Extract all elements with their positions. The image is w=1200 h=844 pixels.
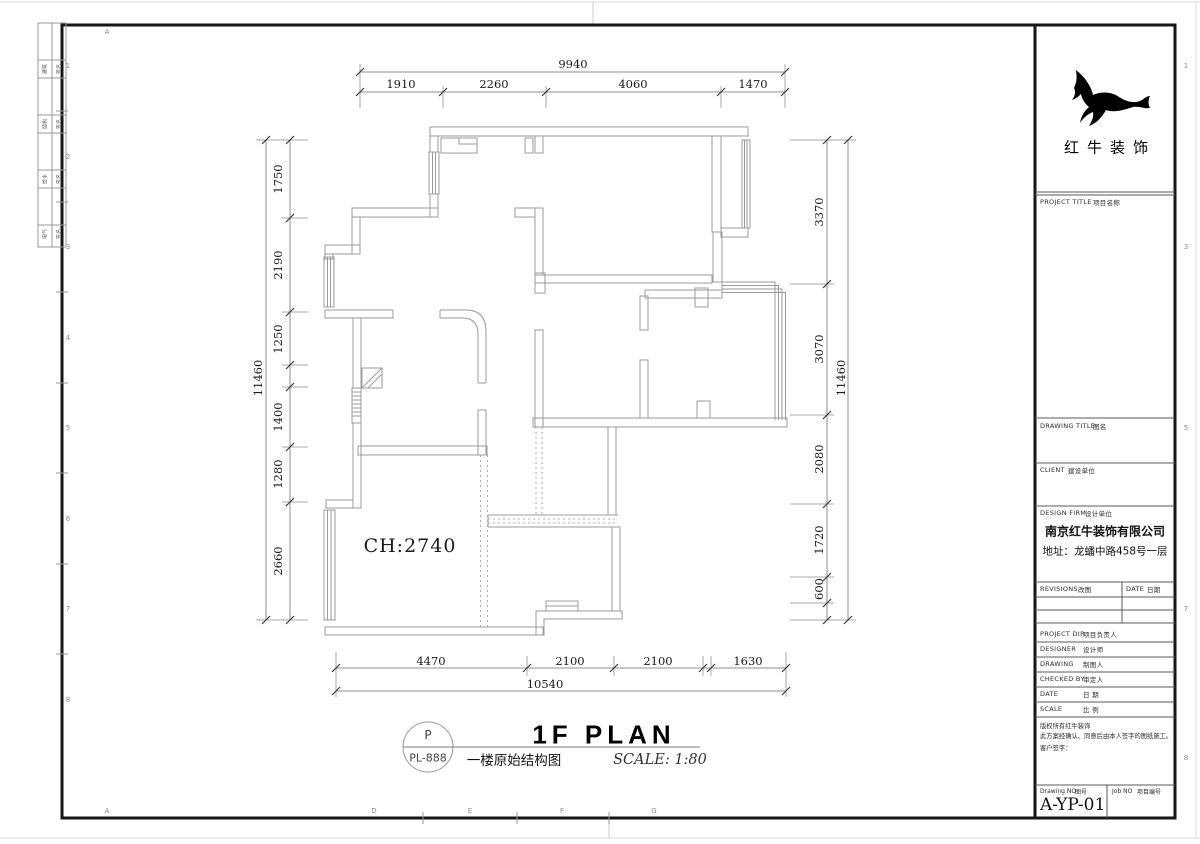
grid-number-left-8: 8 bbox=[66, 696, 70, 704]
signoff-cell: 给水 bbox=[42, 174, 49, 184]
signoff-cell: 签名 bbox=[56, 64, 63, 74]
grid-number-left-1: 1 bbox=[66, 62, 70, 70]
dim-bottom-seg-2: 2100 bbox=[555, 654, 584, 668]
row-scale-cn: 比 例 bbox=[1083, 704, 1099, 714]
design-firm-label-cn: 设计单位 bbox=[1085, 508, 1112, 518]
dim-right-seg-3: 2080 bbox=[812, 444, 826, 473]
date-header-en: DATE bbox=[1126, 585, 1144, 593]
drawing-title-label-en: DRAWING TITLE bbox=[1040, 422, 1095, 430]
copyright-line-2: 此方案经确认、同意后由本人签字的图纸施工。 bbox=[1040, 731, 1172, 740]
grid-number-left-4: 4 bbox=[66, 334, 70, 342]
row-designer-cn: 设计师 bbox=[1083, 644, 1103, 654]
grid-number-left-6: 6 bbox=[66, 515, 70, 523]
drawing-title-label-cn: 图名 bbox=[1093, 421, 1107, 431]
row-drawing-en: DRAWING bbox=[1040, 660, 1074, 668]
signoff-cell: 签名 bbox=[56, 119, 63, 129]
grid-number-right-5: 5 bbox=[1184, 424, 1188, 432]
dim-top-seg-3: 4060 bbox=[618, 77, 647, 91]
row-checked-en: CHECKED BY bbox=[1040, 675, 1085, 683]
dim-left-seg-1: 1750 bbox=[271, 164, 285, 193]
row-date-cn: 日 期 bbox=[1083, 689, 1099, 699]
dim-bottom-seg-3: 2100 bbox=[643, 654, 672, 668]
dim-bottom-seg-1: 4470 bbox=[416, 654, 445, 668]
grid-number-left-3: 3 bbox=[66, 243, 70, 251]
project-title-label-cn: 项目名称 bbox=[1093, 197, 1120, 207]
client-label-en: CLIENT bbox=[1040, 466, 1065, 474]
grid-letter-bottom-d: D bbox=[371, 807, 376, 815]
dim-right-seg-5: 600 bbox=[812, 578, 826, 600]
signoff-cell: 电气 bbox=[42, 229, 49, 239]
date-header-cn: 日期 bbox=[1147, 584, 1161, 594]
plan-scale: SCALE: 1:80 bbox=[613, 752, 707, 768]
row-project-dir-cn: 项目负责人 bbox=[1083, 629, 1117, 639]
ceiling-height-label: CH:2740 bbox=[364, 535, 457, 557]
drawing-number: A-YP-01 bbox=[1040, 795, 1105, 815]
grid-number-left-7: 7 bbox=[66, 605, 70, 613]
row-checked-cn: 审定人 bbox=[1083, 674, 1103, 684]
bubble-letter: P bbox=[424, 728, 431, 742]
row-date-en: DATE bbox=[1040, 690, 1058, 698]
company-address: 地址：龙蟠中路458号一层 bbox=[1042, 544, 1167, 559]
grid-letter-bottom-e: E bbox=[468, 807, 472, 815]
dim-right-total: 11460 bbox=[834, 360, 848, 397]
dim-left-seg-2: 2190 bbox=[271, 250, 285, 279]
dim-top-seg-2: 2260 bbox=[479, 77, 508, 91]
grid-number-right-1: 1 bbox=[1184, 62, 1188, 70]
border-ticks bbox=[56, 111, 609, 824]
dim-left-seg-5: 1280 bbox=[271, 459, 285, 488]
row-drawing-cn: 制图人 bbox=[1083, 659, 1103, 669]
signoff-cell: 签名 bbox=[56, 174, 63, 184]
grid-number-left-2: 2 bbox=[66, 153, 70, 161]
job-no-label-cn: 项目编号 bbox=[1137, 787, 1161, 796]
floor-plan-walls bbox=[325, 127, 787, 635]
grid-letter-bottom-f: F bbox=[560, 807, 564, 815]
dim-left-seg-6: 2660 bbox=[271, 546, 285, 575]
company-name: 南京红牛装饰有限公司 bbox=[1045, 523, 1165, 540]
company-logo-icon bbox=[1072, 70, 1150, 126]
signature-label: 客户签字： bbox=[1040, 743, 1071, 752]
dim-left-total: 11460 bbox=[251, 360, 265, 397]
dim-left-seg-4: 1400 bbox=[271, 402, 285, 431]
sheet-border bbox=[62, 25, 1175, 818]
copyright-line-1: 版权所有红牛装饰 bbox=[1040, 721, 1090, 730]
plan-title: 1F PLAN bbox=[532, 720, 675, 751]
grid-letter-bottom-g: G bbox=[651, 807, 656, 815]
revisions-label-en: REVISIONS bbox=[1040, 585, 1078, 593]
signoff-cell: 签名 bbox=[56, 229, 63, 239]
project-title-label-en: PROJECT TITLE bbox=[1040, 198, 1092, 206]
row-scale-en: SCALE bbox=[1040, 705, 1062, 713]
dim-right-seg-1: 3370 bbox=[812, 197, 826, 226]
dim-top-seg-4: 1470 bbox=[738, 77, 767, 91]
grid-number-right-8: 8 bbox=[1184, 754, 1188, 762]
signoff-cell: 结构 bbox=[42, 119, 49, 129]
signoff-cell: 建筑 bbox=[42, 64, 49, 74]
grid-number-left-5: 5 bbox=[66, 424, 70, 432]
dim-top-total: 9940 bbox=[558, 57, 587, 71]
grid-number-right-7: 7 bbox=[1184, 605, 1188, 613]
dim-top-seg-1: 1910 bbox=[386, 77, 415, 91]
extension-lines bbox=[256, 64, 856, 697]
client-label-cn: 建设单位 bbox=[1068, 465, 1095, 475]
design-firm-label-en: DESIGN FIRM bbox=[1040, 509, 1086, 517]
job-no-label-en: Job NO bbox=[1112, 788, 1132, 795]
grid-letter-bottom-a: A bbox=[105, 807, 110, 815]
dim-bottom-seg-4: 1630 bbox=[733, 654, 762, 668]
logo-text: 红牛装饰 bbox=[1064, 137, 1156, 158]
dim-right-seg-2: 3070 bbox=[812, 334, 826, 363]
row-designer-en: DESIGNER bbox=[1040, 645, 1076, 653]
bubble-number: PL-888 bbox=[409, 752, 447, 765]
grid-number-right-3: 3 bbox=[1184, 243, 1188, 251]
drawing-sheet: 9940 1910 2260 4060 1470 4470 2100 2100 … bbox=[0, 0, 1200, 844]
dim-left-seg-3: 1250 bbox=[271, 324, 285, 353]
grid-letter-top: A bbox=[105, 28, 110, 36]
row-project-dir-en: PROJECT DIR bbox=[1040, 630, 1085, 638]
dim-bottom-total: 10540 bbox=[527, 677, 564, 691]
dim-right-seg-4: 1720 bbox=[812, 525, 826, 554]
drawing-no-label-en: Drawing NO bbox=[1040, 788, 1076, 795]
plan-title-cn: 一楼原始结构图 bbox=[467, 749, 562, 769]
sheet-linework bbox=[0, 0, 1200, 844]
revisions-label-cn: 改图 bbox=[1078, 584, 1092, 594]
